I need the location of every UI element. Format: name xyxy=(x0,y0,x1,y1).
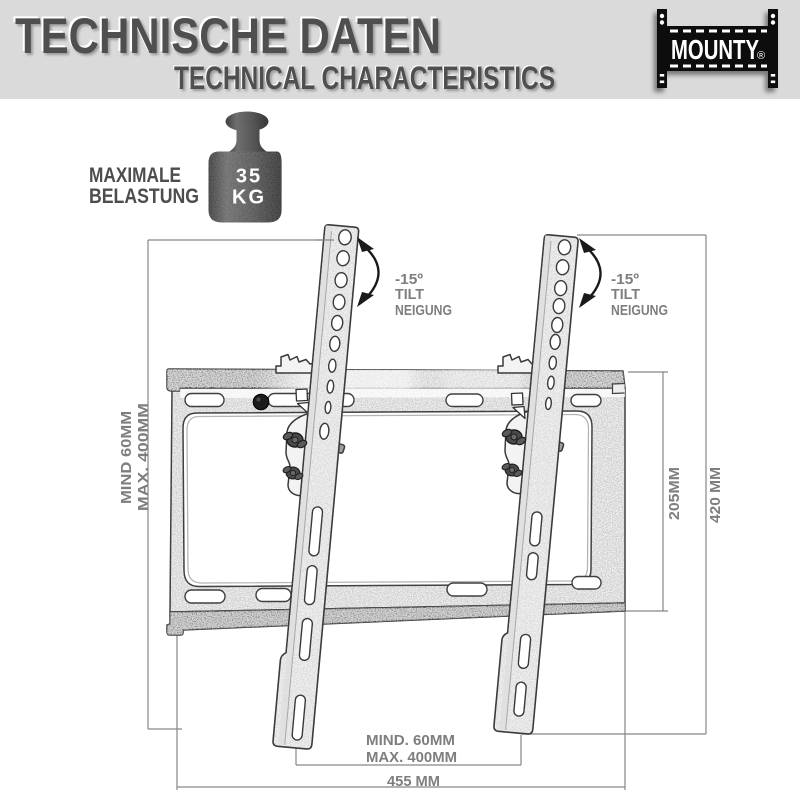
svg-text:420 MM: 420 MM xyxy=(707,467,724,523)
svg-text:TILT: TILT xyxy=(395,286,424,303)
svg-text:MAX. 400MM: MAX. 400MM xyxy=(366,749,457,766)
svg-text:TECHNICAL CHARACTERISTICS: TECHNICAL CHARACTERISTICS xyxy=(174,60,555,96)
svg-text:35: 35 xyxy=(236,166,262,188)
svg-text:NEIGUNG: NEIGUNG xyxy=(611,302,668,319)
svg-text:KG: KG xyxy=(232,187,266,209)
svg-text:®: ® xyxy=(757,50,765,62)
svg-text:TILT: TILT xyxy=(611,286,640,303)
svg-text:TECHNISCHE DATEN: TECHNISCHE DATEN xyxy=(15,8,441,64)
svg-text:MAXIMALE: MAXIMALE xyxy=(89,164,181,187)
svg-text:MAX. 400MM: MAX. 400MM xyxy=(135,403,152,511)
svg-text:455 MM: 455 MM xyxy=(387,773,440,790)
svg-text:BELASTUNG: BELASTUNG xyxy=(89,185,199,208)
svg-text:MIND 60MM: MIND 60MM xyxy=(118,411,135,504)
svg-text:MOUNTY: MOUNTY xyxy=(671,34,759,65)
svg-text:NEIGUNG: NEIGUNG xyxy=(395,302,452,319)
svg-text:205MM: 205MM xyxy=(666,467,683,520)
svg-text:MIND. 60MM: MIND. 60MM xyxy=(366,732,455,749)
